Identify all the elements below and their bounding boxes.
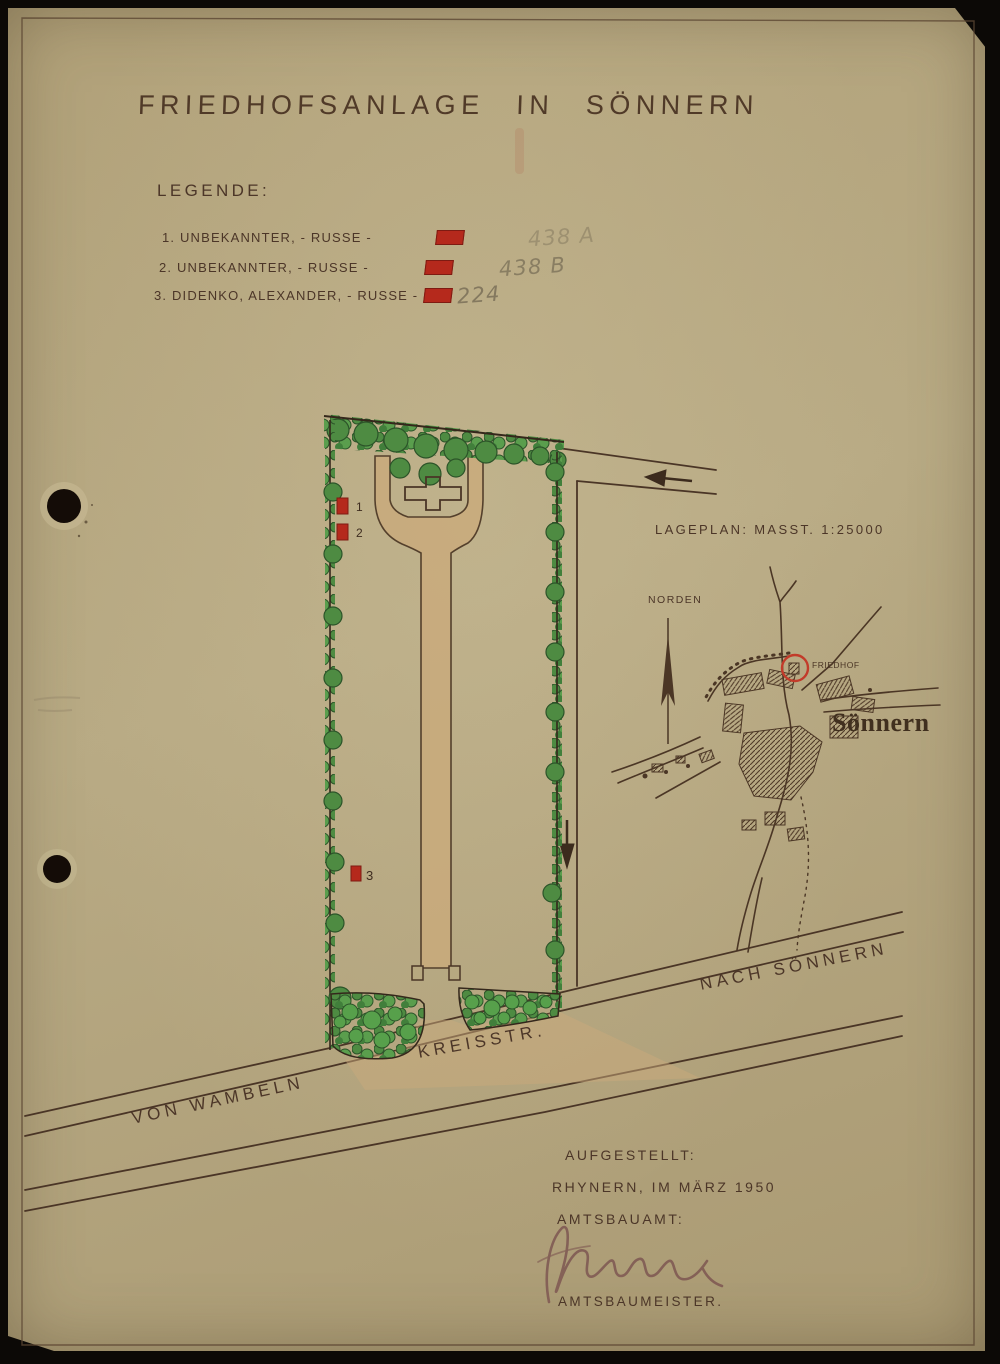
legend-item-2: 2. UNBEKANNTER, - RUSSE - 438 B [159, 257, 566, 278]
grave-marker-2 [337, 524, 348, 540]
legend-heading: LEGENDE: [157, 182, 270, 199]
grave-label-1: 1 [356, 501, 363, 513]
legend-item-3: 3. DIDENKO, ALEXANDER, - RUSSE - 224 [154, 285, 501, 306]
signature [538, 1227, 722, 1302]
footer-amtsbauamt: AMTSBAUAMT: [557, 1212, 684, 1226]
page-title: FRIEDHOFSANLAGE IN SÖNNERN [138, 92, 760, 119]
road-lines [25, 448, 903, 1211]
grave-color-swatch [423, 288, 453, 303]
legend-item-name: DIDENKO, ALEXANDER, - RUSSE - [172, 289, 418, 302]
grave-marker-1 [337, 498, 348, 514]
cemetery-path [375, 456, 483, 968]
gate-post [449, 966, 460, 980]
pencil-note: 438 A [527, 225, 595, 251]
grave-color-swatch [435, 230, 465, 245]
legend-item-number: 2. [159, 261, 172, 274]
grave-marker-3 [351, 866, 361, 881]
red-stain [515, 128, 524, 174]
gate-post [412, 966, 423, 980]
grave-label-3: 3 [366, 869, 373, 882]
norden-label: NORDEN [648, 595, 702, 606]
legend-item-number: 1. [162, 231, 175, 244]
legend-item-number: 3. [154, 289, 167, 302]
footer-place-date: RHYNERN, IM MÄRZ 1950 [552, 1180, 776, 1194]
scan-corner-cut [955, 8, 986, 48]
pencil-smudge [34, 697, 80, 711]
cemetery-plan [324, 414, 700, 1090]
legend-item-1: 1. UNBEKANNTER, - RUSSE - 438 A [162, 227, 595, 248]
legend-item-name: UNBEKANNTER, - RUSSE - [177, 261, 369, 274]
pencil-note: 224 [457, 284, 502, 308]
pencil-note: 438 B [498, 255, 566, 281]
lageplan-caption: LAGEPLAN: MASST. 1:25000 [655, 523, 885, 536]
village-name-label: Sönnern [832, 710, 930, 736]
north-arrow-icon [661, 618, 675, 744]
scanned-sheet: FRIEDHOFSANLAGE IN SÖNNERN LEGENDE: 1. U… [0, 0, 1000, 1364]
grave-color-swatch [424, 260, 454, 275]
village-sketch [612, 567, 940, 952]
footer-amtsbaumeister: AMTSBAUMEISTER. [558, 1295, 723, 1309]
friedhof-label: FRIEDHOF [812, 661, 860, 670]
grave-label-2: 2 [356, 527, 363, 539]
plan-drawing [0, 0, 1000, 1364]
punch-holes [37, 482, 93, 889]
footer-aufgestellt: AUFGESTELLT: [565, 1148, 696, 1162]
scan-corner-cut-bottom [8, 1336, 54, 1351]
legend-item-name: UNBEKANNTER, - RUSSE - [180, 231, 372, 244]
